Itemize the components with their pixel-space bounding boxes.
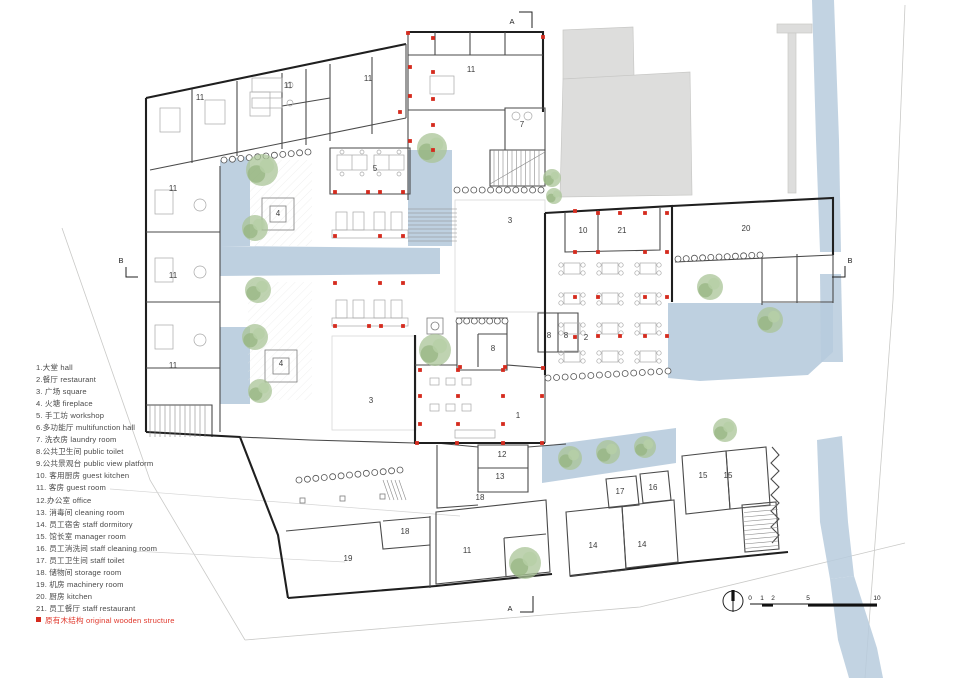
svg-text:11: 11 [196,93,205,102]
svg-text:12: 12 [498,450,507,459]
svg-text:20: 20 [742,224,751,233]
floor-plan-sheet: 1111111111111111754433102120288811213181… [0,0,960,678]
svg-text:3: 3 [508,216,513,225]
svg-text:5: 5 [373,164,378,173]
svg-text:11: 11 [364,74,373,83]
legend-item: 6.多功能厅 multifunction hall [36,422,175,434]
legend-item: 17. 员工卫生间 staff toilet [36,555,175,567]
legend-item: 4. 火塘 fireplace [36,398,175,410]
svg-text:11: 11 [467,65,476,74]
svg-text:4: 4 [279,359,284,368]
svg-text:1: 1 [516,411,521,420]
legend-item: 15. 馆长室 manager room [36,531,175,543]
svg-text:8: 8 [491,344,496,353]
wooden-structure-dot-icon [36,617,41,622]
svg-text:14: 14 [589,541,598,550]
legend-item: 9.公共景观台 public view platform [36,458,175,470]
legend-item: 3. 广场 square [36,386,175,398]
neighbor-buildings [560,24,812,197]
svg-text:10: 10 [579,226,588,235]
svg-text:17: 17 [616,487,625,496]
svg-text:19: 19 [344,554,353,563]
water-pools [220,0,883,678]
legend-item: 8.公共卫生间 public toilet [36,446,175,458]
svg-text:7: 7 [520,120,525,129]
svg-text:13: 13 [496,472,505,481]
legend-item: 12.办公室 office [36,495,175,507]
svg-text:B: B [118,256,123,265]
legend-note: 原有木结构 original wooden structure [36,615,175,627]
svg-text:2: 2 [584,333,589,342]
legend-item: 5. 手工坊 workshop [36,410,175,422]
legend-item: 11. 客房 guest room [36,482,175,494]
legend: 1.大堂 hall2.餐厅 restaurant3. 广场 square4. 火… [36,362,175,627]
svg-text:8: 8 [547,331,552,340]
svg-text:15: 15 [724,471,733,480]
legend-item: 13. 消毒间 cleaning room [36,507,175,519]
north-arrow-icon [723,590,743,612]
svg-text:5: 5 [806,595,810,602]
legend-item: 2.餐厅 restaurant [36,374,175,386]
legend-item: 21. 员工餐厅 staff restaurant [36,603,175,615]
svg-text:A: A [507,604,512,613]
legend-item: 14. 员工宿舍 staff dormitory [36,519,175,531]
legend-item: 16. 员工消洗间 staff cleaning room [36,543,175,555]
svg-text:18: 18 [476,493,485,502]
legend-item: 1.大堂 hall [36,362,175,374]
legend-item: 20. 厨房 kitchen [36,591,175,603]
svg-text:3: 3 [369,396,374,405]
svg-text:4: 4 [276,209,281,218]
svg-text:2: 2 [771,595,775,602]
svg-text:14: 14 [638,540,647,549]
svg-text:11: 11 [169,184,178,193]
legend-item: 19. 机房 machinery room [36,579,175,591]
svg-text:16: 16 [649,483,658,492]
svg-text:8: 8 [564,331,569,340]
svg-text:15: 15 [699,471,708,480]
svg-text:A: A [509,17,514,26]
svg-text:0: 0 [748,595,752,602]
svg-text:21: 21 [618,226,627,235]
legend-item: 7. 洗衣房 laundry room [36,434,175,446]
legend-item: 18. 储物间 storage room [36,567,175,579]
svg-text:10: 10 [873,595,881,602]
svg-text:18: 18 [401,527,410,536]
svg-text:11: 11 [463,546,472,555]
svg-text:11: 11 [169,271,178,280]
svg-text:B: B [847,256,852,265]
legend-note-text: 原有木结构 original wooden structure [45,616,175,625]
svg-text:11: 11 [284,81,293,90]
legend-item: 10. 客用厨房 guest kitchen [36,470,175,482]
svg-text:1: 1 [760,595,764,602]
